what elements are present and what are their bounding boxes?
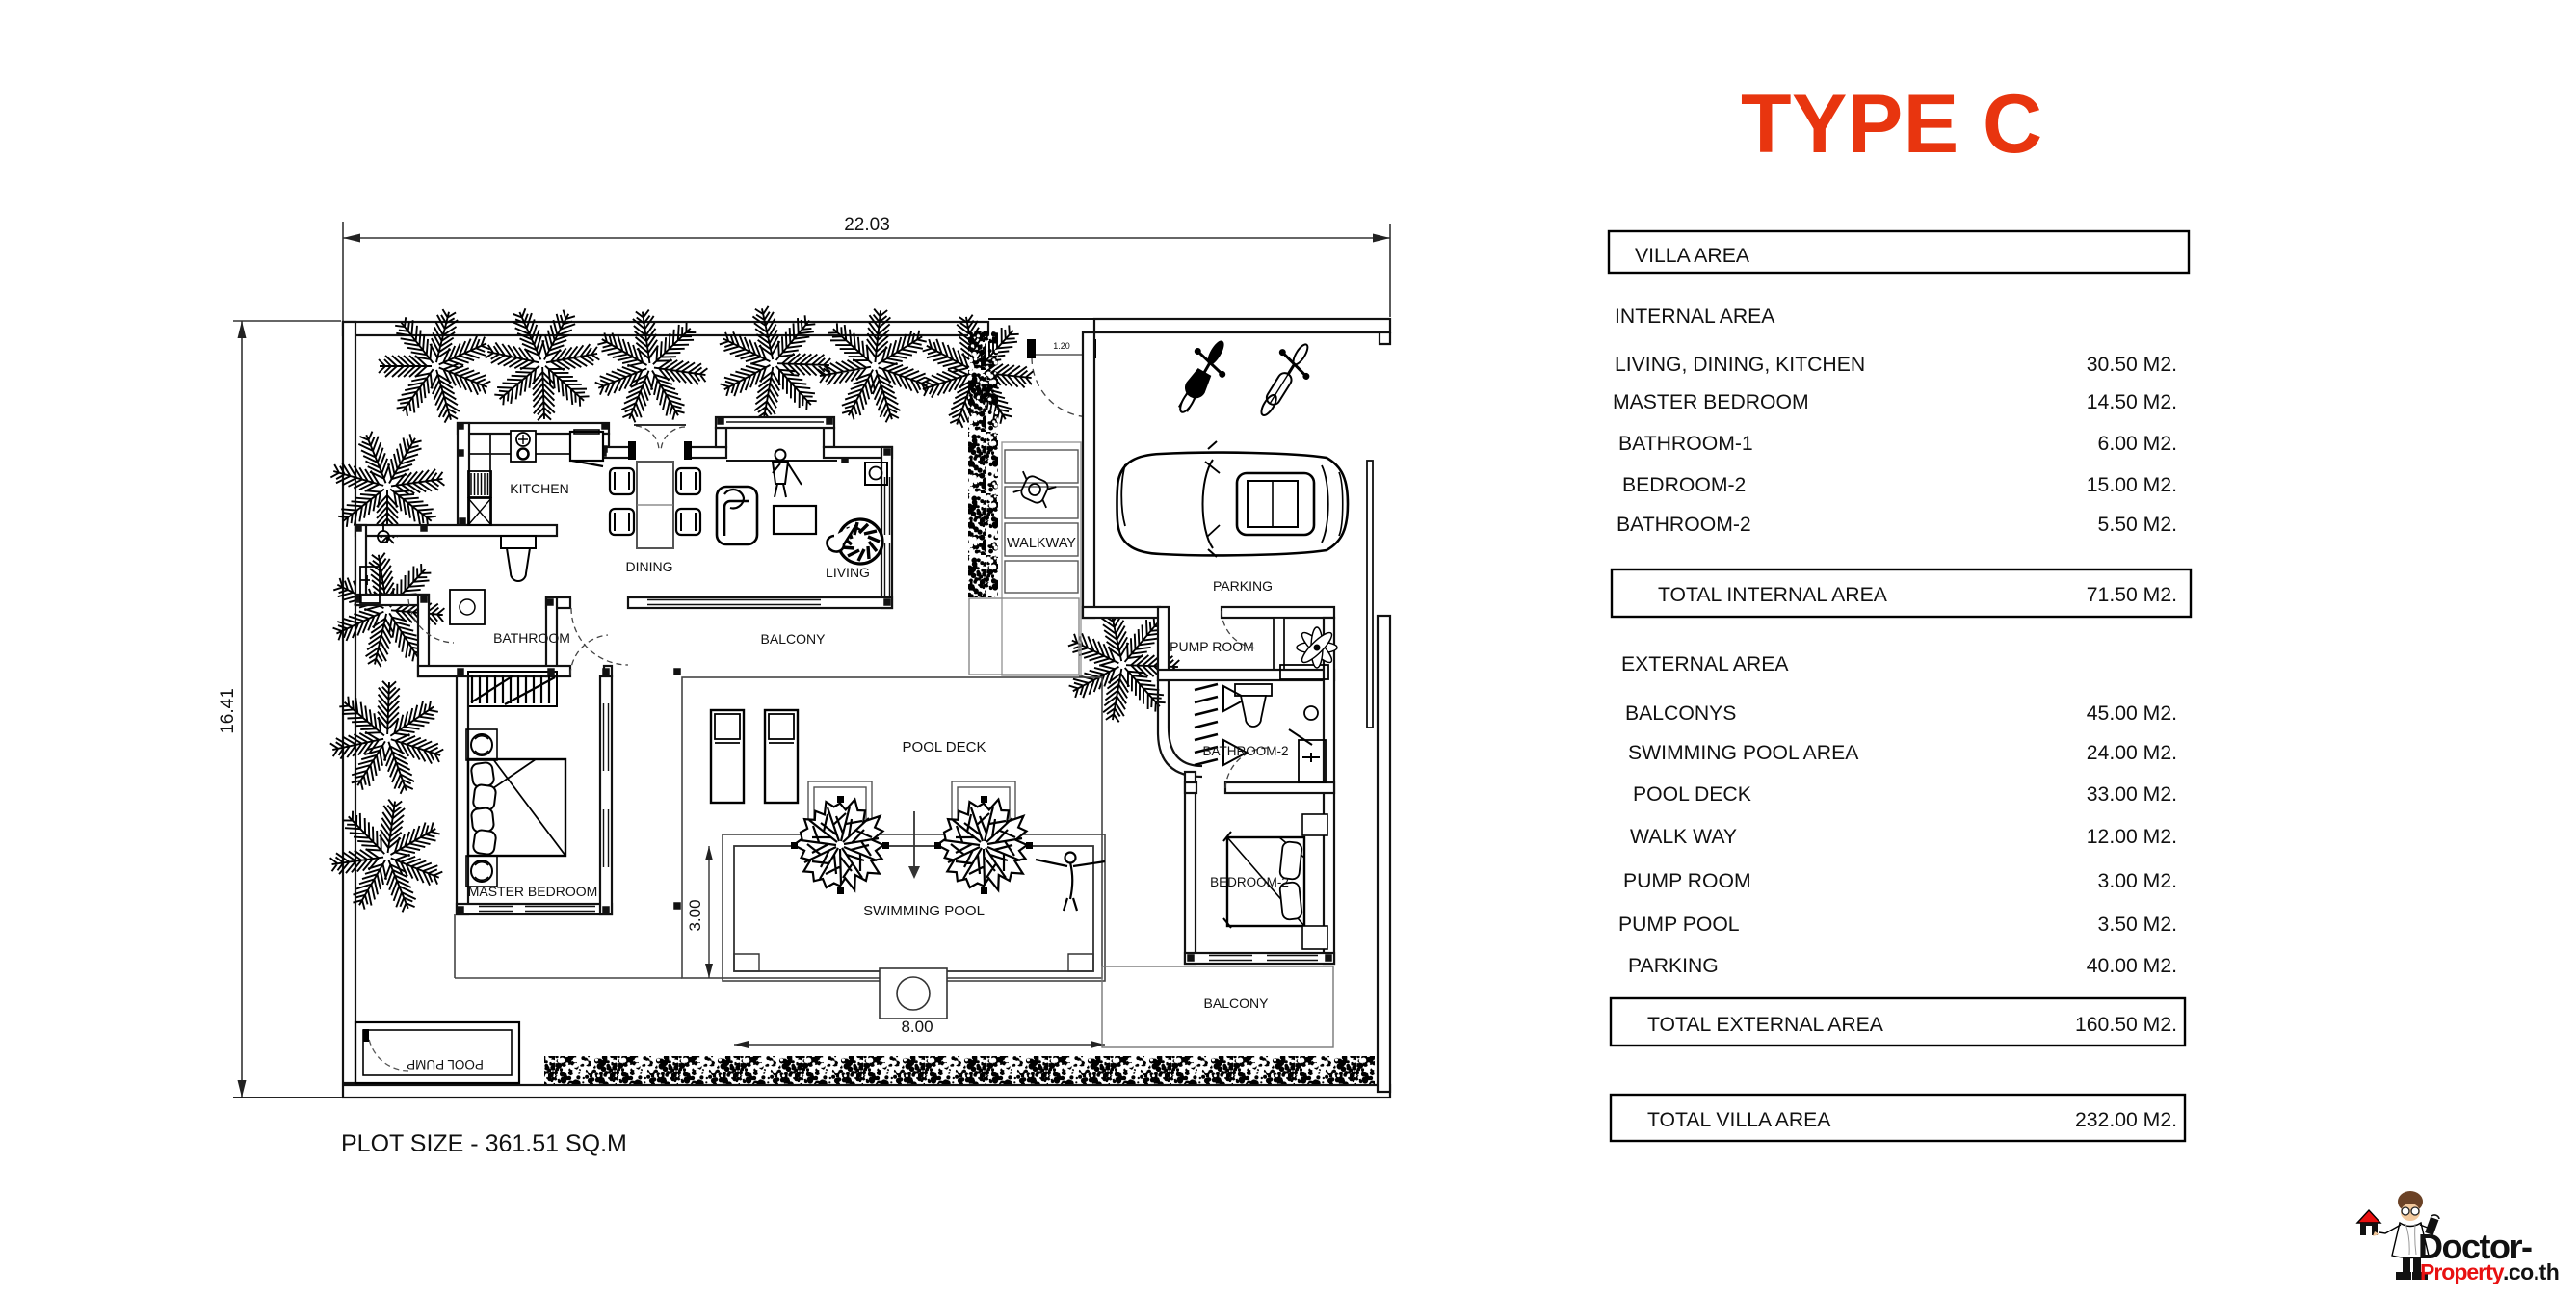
- svg-text:22.03: 22.03: [844, 215, 890, 235]
- svg-text:160.50 M2.: 160.50 M2.: [2075, 1014, 2177, 1036]
- svg-text:6.00 M2.: 6.00 M2.: [2098, 433, 2177, 455]
- svg-text:SWIMMING POOL AREA: SWIMMING POOL AREA: [1628, 742, 1859, 764]
- svg-text:40.00 M2.: 40.00 M2.: [2087, 955, 2177, 977]
- svg-text:BATHROOM-2: BATHROOM-2: [1617, 514, 1751, 536]
- svg-text:16.41: 16.41: [218, 688, 238, 734]
- svg-text:MASTER BEDROOM: MASTER BEDROOM: [468, 884, 598, 899]
- svg-text:WALK WAY: WALK WAY: [1630, 826, 1737, 848]
- svg-text:12.00 M2.: 12.00 M2.: [2087, 826, 2177, 848]
- svg-text:71.50 M2.: 71.50 M2.: [2087, 584, 2177, 606]
- svg-text:INTERNAL AREA: INTERNAL AREA: [1615, 305, 1775, 328]
- svg-text:PUMP ROOM: PUMP ROOM: [1170, 639, 1254, 654]
- svg-text:PARKING: PARKING: [1213, 578, 1273, 594]
- svg-text:BALCONY: BALCONY: [1204, 995, 1270, 1011]
- svg-text:3.00 M2.: 3.00 M2.: [2098, 870, 2177, 892]
- svg-text:Property: Property: [2420, 1259, 2505, 1284]
- svg-text:5.50 M2.: 5.50 M2.: [2098, 514, 2177, 536]
- svg-text:KITCHEN: KITCHEN: [510, 481, 568, 496]
- svg-text:TOTAL INTERNAL AREA: TOTAL INTERNAL AREA: [1658, 584, 1888, 606]
- svg-text:LIVING: LIVING: [826, 565, 870, 580]
- svg-text:DINING: DINING: [626, 559, 673, 574]
- svg-text:14.50 M2.: 14.50 M2.: [2087, 391, 2177, 413]
- svg-text:BATHROOM: BATHROOM: [493, 630, 570, 646]
- svg-text:BEDROOM-2: BEDROOM-2: [1210, 875, 1289, 889]
- svg-text:PUMP POOL: PUMP POOL: [1618, 913, 1740, 936]
- svg-text:LIVING, DINING, KITCHEN: LIVING, DINING, KITCHEN: [1615, 354, 1865, 376]
- svg-text:WALKWAY: WALKWAY: [1007, 536, 1076, 551]
- svg-text:EXTERNAL AREA: EXTERNAL AREA: [1621, 653, 1789, 675]
- svg-text:MASTER BEDROOM: MASTER BEDROOM: [1613, 391, 1809, 413]
- svg-text:30.50 M2.: 30.50 M2.: [2087, 354, 2177, 376]
- svg-text:VILLA AREA: VILLA AREA: [1635, 245, 1750, 267]
- svg-text:.co.th: .co.th: [2503, 1259, 2559, 1284]
- svg-text:TYPE C: TYPE C: [1741, 78, 2043, 171]
- svg-text:PUMP ROOM: PUMP ROOM: [1623, 870, 1751, 892]
- svg-text:8.00: 8.00: [901, 1018, 933, 1036]
- svg-text:24.00 M2.: 24.00 M2.: [2087, 742, 2177, 764]
- svg-text:45.00 M2.: 45.00 M2.: [2087, 702, 2177, 725]
- svg-text:3.00: 3.00: [686, 899, 704, 931]
- svg-text:POOL DECK: POOL DECK: [903, 739, 986, 755]
- svg-text:15.00 M2.: 15.00 M2.: [2087, 474, 2177, 496]
- svg-text:232.00 M2.: 232.00 M2.: [2075, 1109, 2177, 1131]
- svg-text:BATHROOM-1: BATHROOM-1: [1618, 433, 1753, 455]
- svg-text:BATHROOM-2: BATHROOM-2: [1202, 744, 1288, 758]
- svg-text:PARKING: PARKING: [1628, 955, 1719, 977]
- svg-text:BALCONY: BALCONY: [761, 631, 827, 647]
- svg-text:PLOT SIZE - 361.51 SQ.M: PLOT SIZE - 361.51 SQ.M: [341, 1130, 627, 1157]
- svg-text:TOTAL EXTERNAL AREA: TOTAL EXTERNAL AREA: [1647, 1014, 1884, 1036]
- svg-text:POOL PUMP: POOL PUMP: [407, 1057, 484, 1072]
- svg-text:POOL DECK: POOL DECK: [1633, 783, 1751, 806]
- svg-text:BALCONYS: BALCONYS: [1625, 702, 1736, 725]
- svg-text:1.20: 1.20: [1053, 341, 1070, 351]
- svg-text:SWIMMING POOL: SWIMMING POOL: [863, 903, 985, 919]
- svg-text:BEDROOM-2: BEDROOM-2: [1622, 474, 1746, 496]
- svg-text:3.50 M2.: 3.50 M2.: [2098, 913, 2177, 936]
- svg-text:TOTAL VILLA AREA: TOTAL VILLA AREA: [1647, 1109, 1831, 1131]
- svg-text:33.00 M2.: 33.00 M2.: [2087, 783, 2177, 806]
